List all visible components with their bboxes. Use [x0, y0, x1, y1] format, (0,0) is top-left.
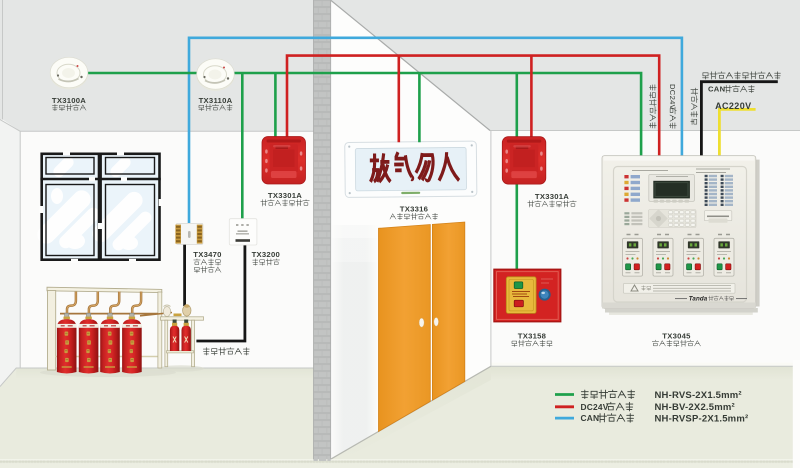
- svg-text:AC220V: AC220V: [715, 101, 751, 111]
- svg-text:TX3158: TX3158: [518, 332, 547, 341]
- svg-text:DC24V: DC24V: [668, 84, 677, 111]
- svg-text:TX3200: TX3200: [252, 250, 280, 259]
- svg-text:TX3316: TX3316: [400, 205, 428, 214]
- svg-text:NH-RVSP-2X1.5mm²: NH-RVSP-2X1.5mm²: [655, 414, 749, 425]
- svg-text:DC24V: DC24V: [581, 402, 609, 412]
- svg-text:TX3470: TX3470: [193, 250, 221, 259]
- svg-text:TX3110A: TX3110A: [199, 96, 233, 105]
- svg-text:TX3301A: TX3301A: [268, 191, 302, 200]
- svg-text:Tanda: Tanda: [689, 295, 708, 302]
- svg-text:NH-RVS-2X1.5mm²: NH-RVS-2X1.5mm²: [655, 390, 742, 401]
- svg-text:TX3301A: TX3301A: [535, 192, 569, 201]
- svg-text:CAN: CAN: [581, 413, 600, 423]
- svg-text:TX3045: TX3045: [662, 332, 691, 341]
- svg-text:TX3100A: TX3100A: [52, 96, 86, 105]
- svg-text:NH-BV-2X2.5mm²: NH-BV-2X2.5mm²: [655, 402, 735, 413]
- svg-text:CAN: CAN: [708, 85, 725, 94]
